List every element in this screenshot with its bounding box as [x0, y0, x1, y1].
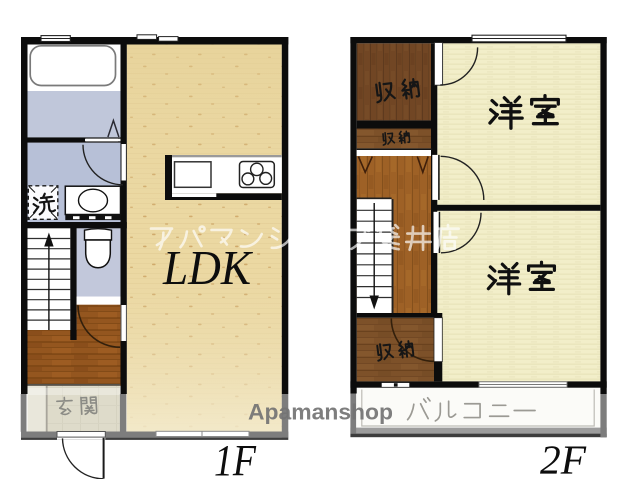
svg-text:2F: 2F: [540, 437, 587, 480]
svg-text:LDK: LDK: [162, 240, 253, 295]
svg-text:Apamanshop: Apamanshop: [248, 400, 393, 425]
svg-text:1F: 1F: [214, 436, 257, 479]
